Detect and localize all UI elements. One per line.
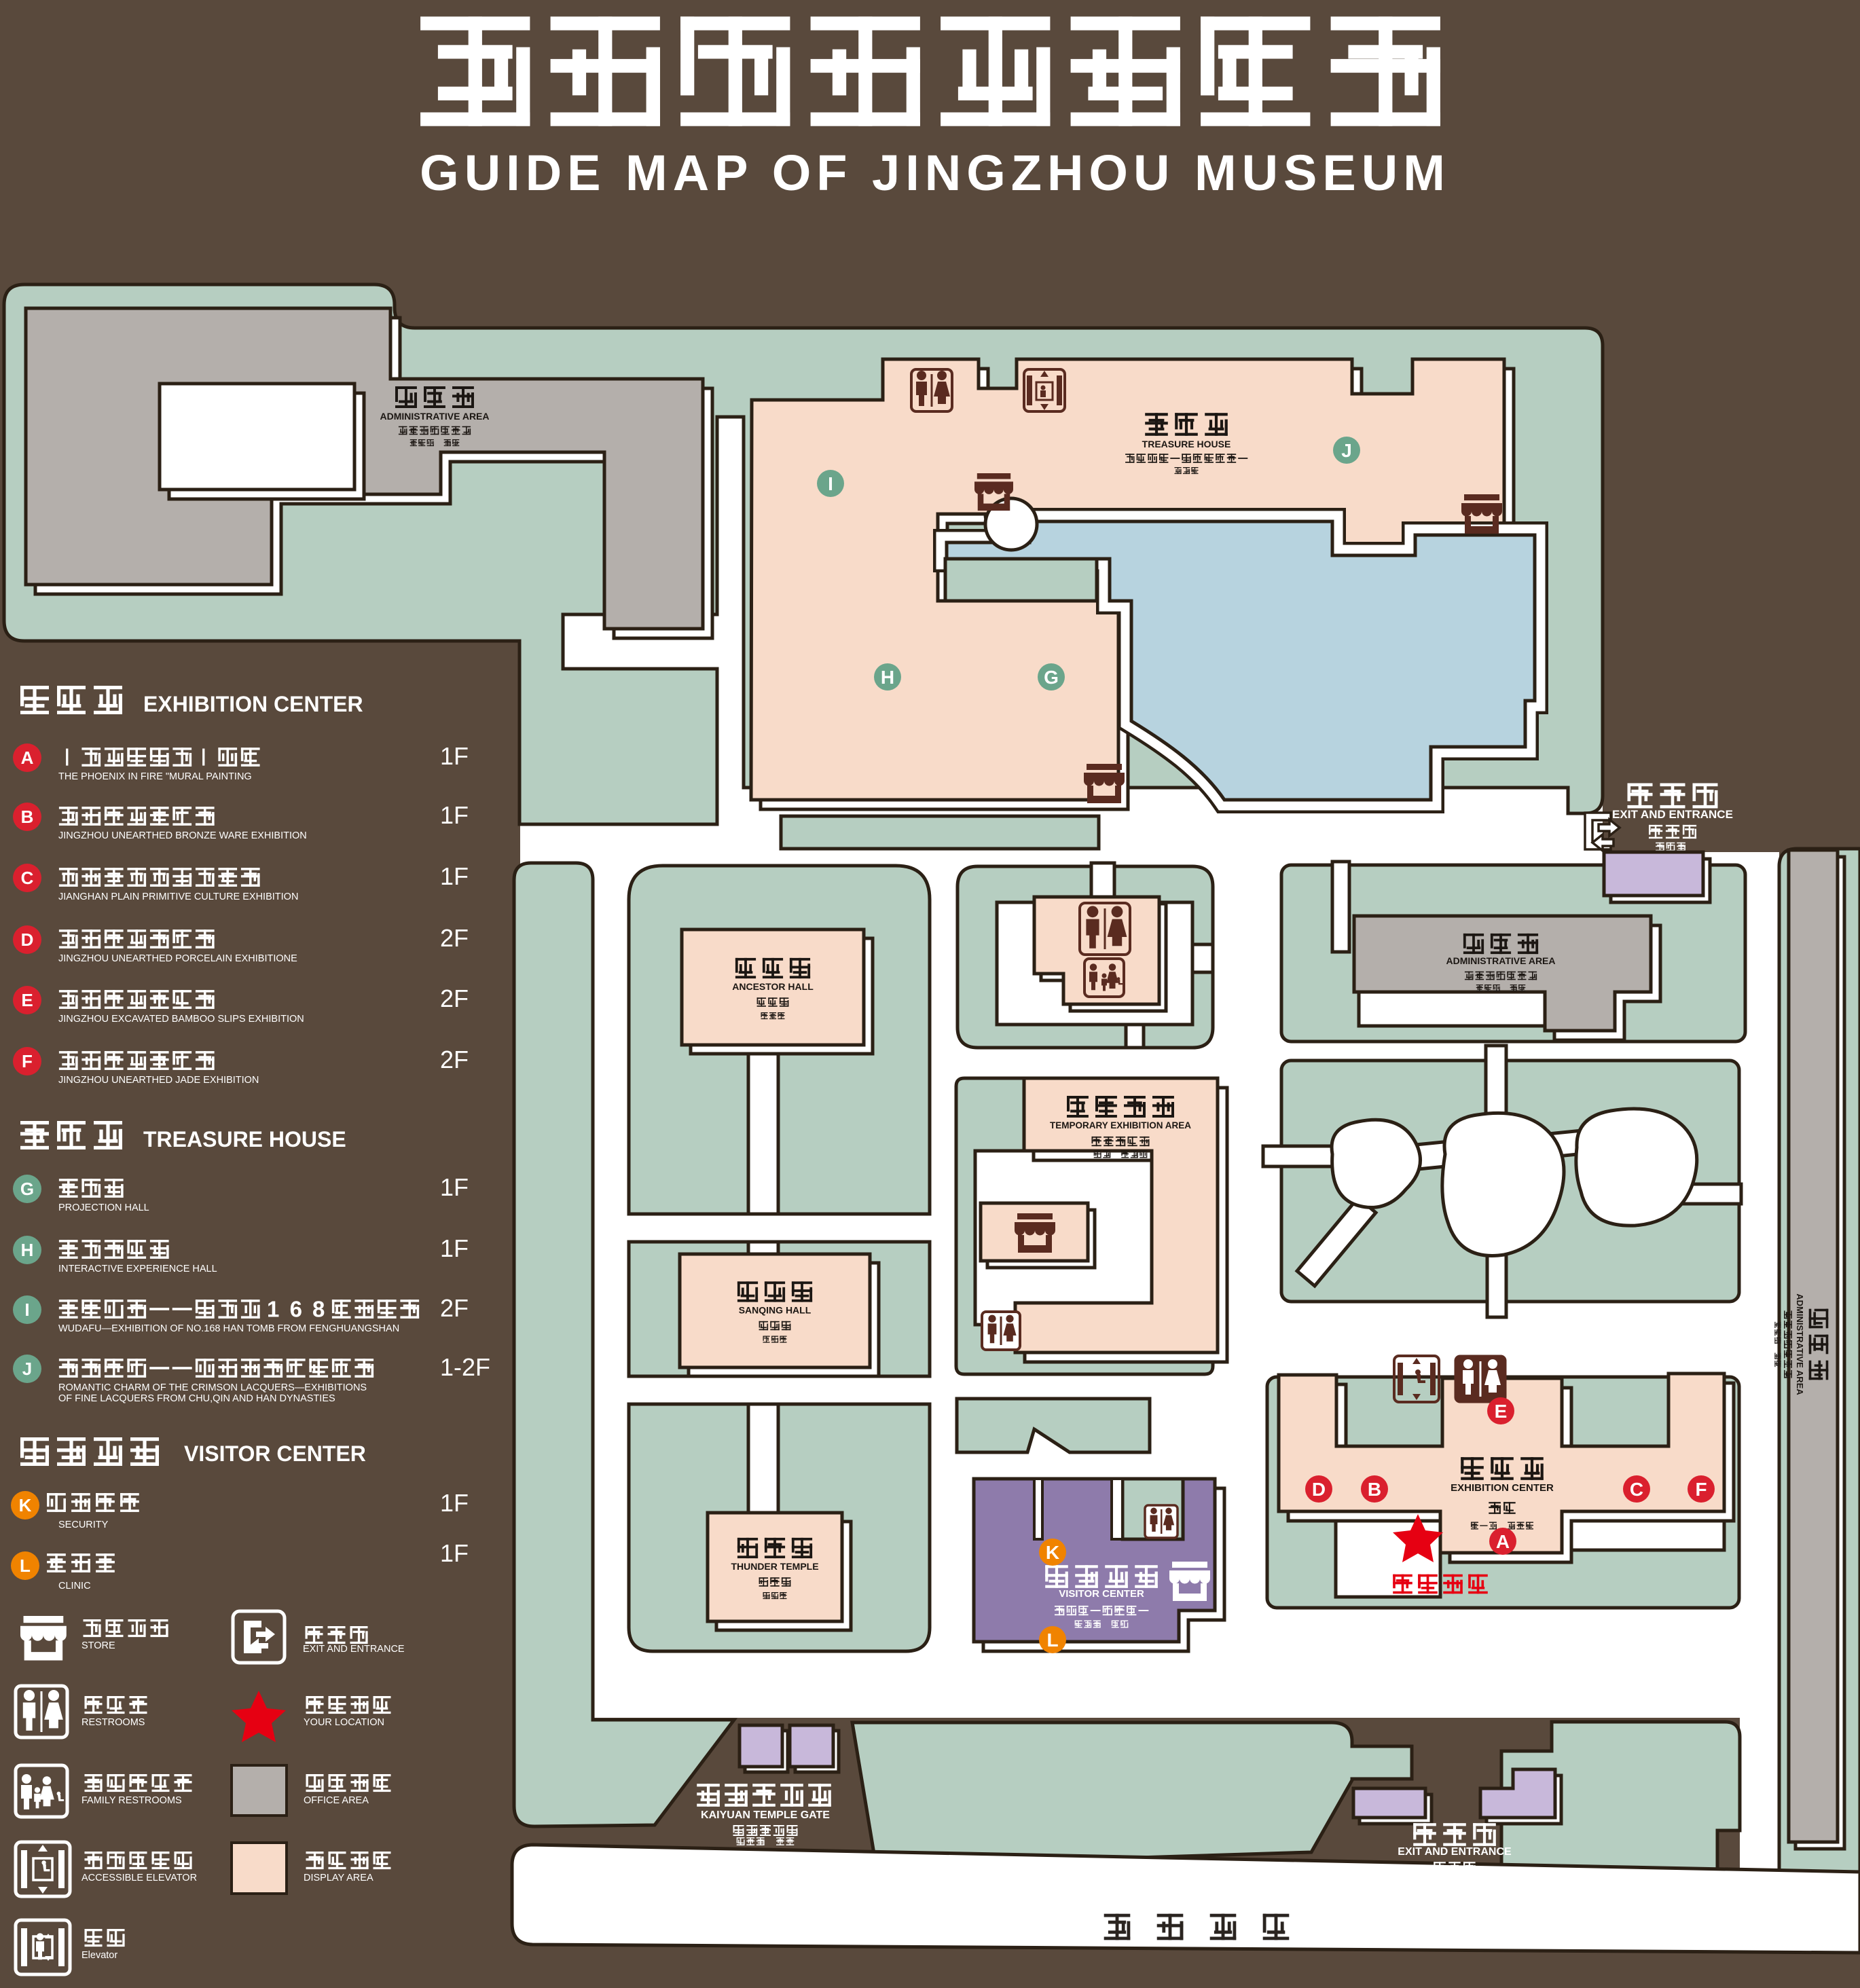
svg-text:E: E <box>21 990 33 1010</box>
svg-text:1F: 1F <box>440 1234 469 1262</box>
svg-text:EXIT AND ENTRANCE: EXIT AND ENTRANCE <box>303 1644 405 1655</box>
svg-text:JIANGHAN PLAIN PRIMITIVE CULTU: JIANGHAN PLAIN PRIMITIVE CULTURE EXHIBIT… <box>58 891 298 902</box>
svg-text:OF FINE LACQUERS FROM CHU,QIN: OF FINE LACQUERS FROM CHU,QIN AND HAN DY… <box>58 1393 335 1404</box>
svg-text:JINGZHOU EXCAVATED BAMBOO SLIP: JINGZHOU EXCAVATED BAMBOO SLIPS EXHIBITI… <box>58 1014 304 1025</box>
svg-text:ADMINISTRATIVE AREA: ADMINISTRATIVE AREA <box>1446 955 1556 966</box>
svg-text:I: I <box>24 1300 29 1320</box>
svg-text:B: B <box>1368 1479 1381 1500</box>
svg-text:H: H <box>881 667 894 688</box>
svg-text:EXHIBITION CENTER: EXHIBITION CENTER <box>143 692 363 716</box>
svg-text:JINGZHOU UNEARTHED BRONZE WARE: JINGZHOU UNEARTHED BRONZE WARE EXHIBITIO… <box>58 830 307 841</box>
svg-text:TREASURE HOUSE: TREASURE HOUSE <box>143 1127 346 1152</box>
svg-text:8: 8 <box>312 1297 325 1322</box>
svg-text:1: 1 <box>267 1297 279 1322</box>
svg-text:A: A <box>21 748 34 768</box>
svg-text:YOUR LOCATION: YOUR LOCATION <box>304 1717 384 1728</box>
svg-text:C: C <box>21 868 34 888</box>
svg-text:OFFICE AREA: OFFICE AREA <box>304 1795 369 1806</box>
svg-text:2F: 2F <box>440 1046 469 1073</box>
svg-text:C: C <box>1630 1479 1643 1500</box>
svg-text:J: J <box>22 1359 32 1379</box>
svg-text:EXHIBITION CENTER: EXHIBITION CENTER <box>1451 1482 1554 1494</box>
svg-text:EXIT AND ENTRANCE: EXIT AND ENTRANCE <box>1612 808 1733 821</box>
svg-text:I: I <box>828 473 833 494</box>
svg-text:1F: 1F <box>440 1173 469 1201</box>
svg-text:JINGZHOU UNEARTHED JADE EXHIBI: JINGZHOU UNEARTHED JADE EXHIBITION <box>58 1075 259 1086</box>
svg-text:B: B <box>21 807 34 827</box>
svg-text:KAIYUAN TEMPLE GATE: KAIYUAN TEMPLE GATE <box>701 1809 830 1821</box>
svg-text:G: G <box>20 1179 34 1199</box>
svg-text:GUIDE MAP OF JINGZHOU MUSEUM: GUIDE MAP OF JINGZHOU MUSEUM <box>420 145 1451 201</box>
svg-text:A: A <box>1496 1531 1510 1552</box>
svg-text:JINGZHOU UNEARTHED PORCELAIN E: JINGZHOU UNEARTHED PORCELAIN EXHIBITIONE <box>58 953 297 964</box>
svg-text:PROJECTION HALL: PROJECTION HALL <box>58 1202 149 1213</box>
svg-text:TREASURE HOUSE: TREASURE HOUSE <box>1142 439 1231 449</box>
svg-text:EXIT AND ENTRANCE: EXIT AND ENTRANCE <box>1398 1846 1512 1858</box>
svg-text:2F: 2F <box>440 984 469 1012</box>
svg-text:ACCESSIBLE ELEVATOR: ACCESSIBLE ELEVATOR <box>81 1873 197 1883</box>
svg-text:INTERACTIVE EXPERIENCE HALL: INTERACTIVE EXPERIENCE HALL <box>58 1264 217 1274</box>
svg-text:TEMPORARY EXHIBITION AREA: TEMPORARY EXHIBITION AREA <box>1050 1120 1191 1130</box>
svg-text:2F: 2F <box>440 1294 469 1322</box>
svg-text:K: K <box>1046 1542 1059 1563</box>
svg-text:VISITOR CENTER: VISITOR CENTER <box>184 1441 366 1466</box>
svg-text:1F: 1F <box>440 1539 469 1567</box>
svg-text:K: K <box>19 1495 32 1515</box>
svg-text:2F: 2F <box>440 924 469 952</box>
svg-text:E: E <box>1495 1401 1508 1422</box>
svg-text:L: L <box>20 1556 31 1576</box>
svg-text:ADMINISTRATIVE AREA: ADMINISTRATIVE AREA <box>380 411 490 422</box>
svg-text:D: D <box>21 929 34 950</box>
svg-text:Elevator: Elevator <box>81 1950 117 1961</box>
svg-text:VISITOR CENTER: VISITOR CENTER <box>1059 1588 1144 1600</box>
svg-text:F: F <box>1695 1479 1707 1500</box>
svg-text:1-2F: 1-2F <box>440 1353 490 1381</box>
svg-text:ROMANTIC CHARM OF THE CRIMSON: ROMANTIC CHARM OF THE CRIMSON LACQUERS—E… <box>58 1382 367 1393</box>
svg-text:STORE: STORE <box>81 1640 115 1651</box>
svg-text:CLINIC: CLINIC <box>58 1581 91 1591</box>
svg-text:6: 6 <box>290 1297 302 1322</box>
svg-text:H: H <box>21 1240 34 1260</box>
svg-text:ANCESTOR HALL: ANCESTOR HALL <box>732 981 814 992</box>
svg-text:THUNDER TEMPLE: THUNDER TEMPLE <box>731 1561 818 1572</box>
svg-text:WUDAFU—EXHIBITION OF NO.168 HA: WUDAFU—EXHIBITION OF NO.168 HAN TOMB FRO… <box>58 1323 399 1334</box>
svg-text:G: G <box>1044 667 1059 688</box>
svg-text:SECURITY: SECURITY <box>58 1520 109 1530</box>
svg-text:L: L <box>1046 1630 1058 1651</box>
svg-text:SANQING HALL: SANQING HALL <box>739 1305 812 1316</box>
svg-text:DISPLAY AREA: DISPLAY AREA <box>304 1873 373 1883</box>
svg-text:FAMILY RESTROOMS: FAMILY RESTROOMS <box>81 1795 182 1806</box>
svg-text:RESTROOMS: RESTROOMS <box>81 1717 145 1728</box>
svg-text:ADMINISTRATIVE AREA: ADMINISTRATIVE AREA <box>1795 1293 1805 1395</box>
svg-text:D: D <box>1312 1479 1326 1500</box>
svg-text:THE PHOENIX IN FIRE "MURAL PAI: THE PHOENIX IN FIRE "MURAL PAINTING <box>58 771 252 782</box>
svg-text:1F: 1F <box>440 801 469 829</box>
svg-text:1F: 1F <box>440 1489 469 1517</box>
svg-text:F: F <box>22 1051 33 1071</box>
svg-text:1F: 1F <box>440 742 469 770</box>
svg-text:1F: 1F <box>440 862 469 890</box>
svg-text:J: J <box>1341 440 1352 461</box>
